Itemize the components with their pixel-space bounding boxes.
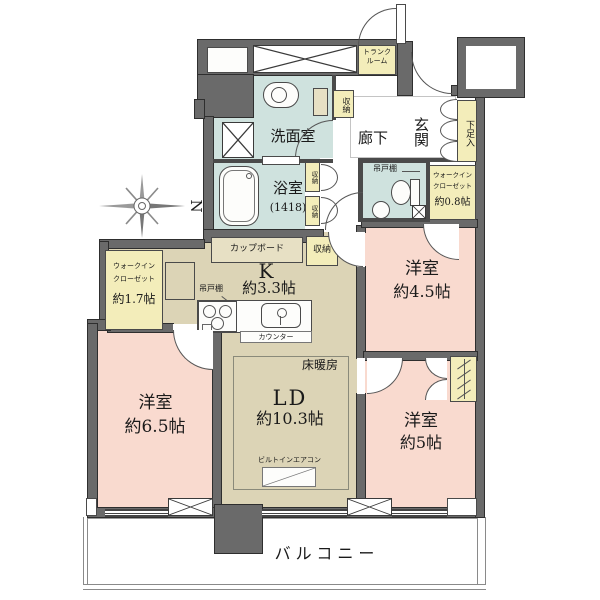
bedroom-5-label: 洋室 [381, 410, 461, 432]
bedroom-45-label: 洋室 [382, 258, 462, 280]
bedroom-45-size: 約4.5帖 [378, 282, 466, 303]
genkan-door-arc [411, 52, 452, 94]
wic-large-line1: ウォークイン [106, 262, 162, 271]
wall-east-outer [476, 88, 484, 517]
bath-door [262, 156, 300, 165]
corner-box-right [447, 498, 477, 516]
toilet-bowl [391, 180, 411, 205]
bedroom-5-size: 約5帖 [385, 433, 457, 454]
toilet-basin [372, 201, 390, 219]
aircon-label: ビルトインエアコン [258, 456, 320, 465]
washroom-side-cabinet [313, 88, 328, 116]
corner-box-left [86, 498, 97, 516]
balcony-inner-line [88, 518, 478, 519]
wall-bath-west [204, 117, 213, 230]
counter-label: カウンター [242, 333, 310, 342]
washbasin-bowl [271, 87, 287, 103]
kitchen-size-label: 約3.3帖 [232, 279, 306, 299]
bedroom-65-label: 洋室 [113, 392, 198, 414]
entrance-door-arc [358, 8, 396, 46]
entrance-door-leaf [396, 4, 406, 44]
duct-box-topright-inner [466, 46, 516, 89]
storage-small-lower-label: 収納 [307, 198, 318, 225]
opening-5-door [357, 358, 365, 394]
entrance-label: 玄関 [410, 106, 430, 158]
balcony-edge-bottom [83, 584, 486, 590]
meter-box [207, 47, 248, 73]
window-living [262, 509, 347, 517]
compass: N [95, 168, 205, 244]
toilet-tank [410, 179, 420, 206]
trunk-room-label2: ルーム [367, 57, 388, 65]
wic-small-line1: ウォークイン [430, 171, 475, 179]
stove [198, 301, 237, 332]
duct-xbox-top [253, 45, 357, 73]
toilet-shelf-pointer [402, 171, 420, 172]
wall-top-left-block [198, 75, 253, 117]
closet-hanger-box [450, 356, 477, 402]
wall-ld-east-2 [357, 267, 365, 358]
balcony-edge-right [477, 517, 486, 589]
wic-small-line2: クローゼット [430, 182, 475, 190]
wall-bath-west-step [195, 100, 204, 118]
balcony-edge-left [83, 517, 88, 589]
compass-n-label: N [187, 199, 205, 212]
wall-west-outer [88, 324, 97, 517]
shutter-box-right [347, 498, 392, 516]
wall-65-ld [213, 330, 221, 512]
floor-heating-label: 床暖房 [294, 358, 346, 374]
bedroom-65-size: 約6.5帖 [105, 416, 205, 438]
shutter-box-left [168, 498, 213, 516]
floor-plan: バルコニー トランク ルーム 玄関 下足入 廊下 [0, 0, 600, 600]
trunk-room-box: トランク ルーム [358, 45, 396, 75]
balcony-label: バルコニー [262, 544, 392, 565]
wic-large-size: 約1.7帖 [103, 292, 165, 308]
toilet-shelf-label: 吊戸棚 [366, 164, 404, 174]
cupboard-label: カップボード [213, 244, 301, 256]
window-bedroom-5 [392, 509, 447, 517]
shoe-cabinet-label: 下足入 [460, 107, 474, 159]
wic-large-line2: クローゼット [106, 275, 162, 284]
toilet-pipe-space [412, 205, 426, 219]
hallway-label: 廊下 [350, 129, 396, 149]
trunk-room-label1: トランク [363, 48, 391, 56]
window-bedroom-65 [105, 509, 168, 517]
wall-ld-east-3 [357, 394, 365, 512]
wall-genkan-block [398, 42, 412, 95]
living-size-label: 約10.3帖 [243, 409, 337, 430]
aircon-box [262, 467, 316, 487]
hall-storage-label: 収納 [336, 92, 351, 118]
wic-small-size: 約0.8帖 [430, 196, 475, 209]
bathtub-drain [246, 173, 252, 179]
kitchen-sink [261, 303, 301, 328]
storage-small-upper-label: 収納 [307, 164, 318, 191]
wall-pillar-balcony [215, 505, 262, 553]
kitchen-shelf-label: 吊戸棚 [190, 284, 232, 294]
